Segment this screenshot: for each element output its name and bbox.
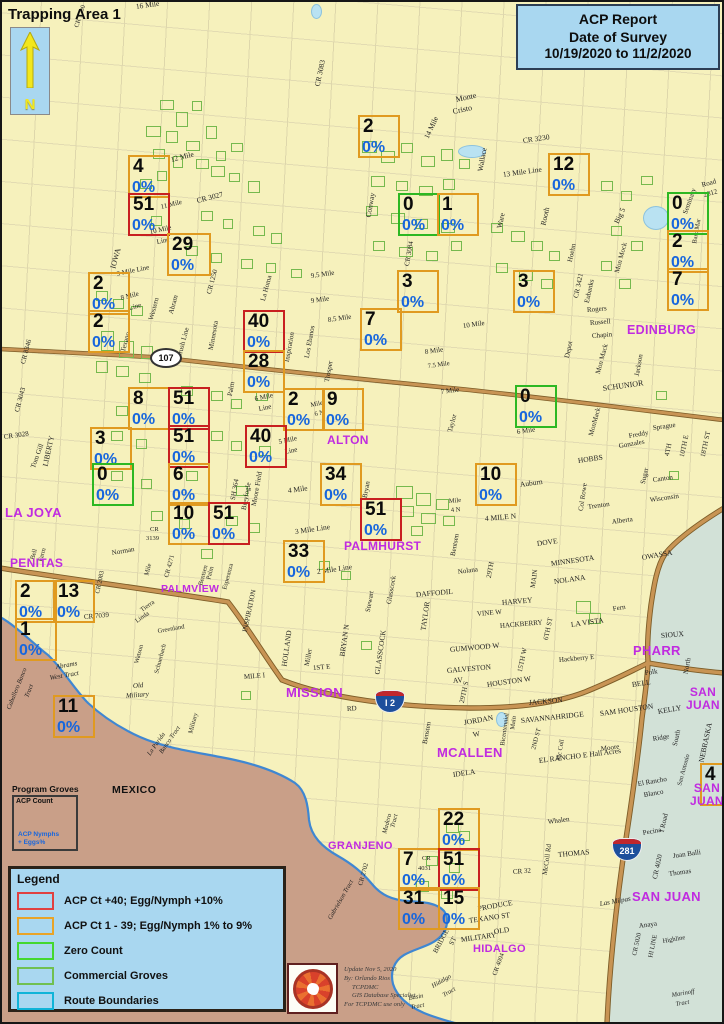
station-count: 2 <box>93 312 104 331</box>
station-percent: 0% <box>172 527 195 543</box>
station-count: 1 <box>20 620 31 639</box>
interstate-shield-label: I 2 <box>385 699 395 708</box>
station-percent: 0% <box>441 218 464 234</box>
station-percent: 0% <box>132 412 155 428</box>
station-count: 40 <box>248 312 269 331</box>
station-count: 0 <box>97 465 108 484</box>
station-percent: 0% <box>552 178 575 194</box>
legend-label: Commercial Groves <box>64 970 168 982</box>
station-box: 70% <box>398 848 440 891</box>
station-count: 51 <box>173 389 194 408</box>
station-percent: 0% <box>212 527 235 543</box>
station-box: 70% <box>667 268 709 311</box>
station-box: 10% <box>15 618 57 661</box>
station-percent: 0% <box>442 912 465 928</box>
station-box: 510% <box>208 502 250 545</box>
city-label: SAN JUAN <box>690 782 724 807</box>
station-percent: 0% <box>96 488 119 504</box>
station-percent: 0% <box>247 335 270 351</box>
credits-line: GIS Database Specialist <box>344 992 464 1001</box>
report-box: ACP Report Date of Survey 10/19/2020 to … <box>516 4 720 70</box>
legend-swatch <box>17 892 54 910</box>
station-count: 31 <box>403 889 424 908</box>
north-arrow-icon <box>18 32 42 88</box>
city-label: SAN JUAN <box>632 890 701 904</box>
station-percent: 0% <box>401 295 424 311</box>
station-box: 100% <box>475 463 517 506</box>
us-route-shield: 107 <box>150 348 182 368</box>
station-count: 10 <box>480 465 501 484</box>
legend-item: Route Boundaries <box>17 988 277 1013</box>
legend-swatch <box>17 992 54 1010</box>
station-box: 70% <box>360 308 402 351</box>
station-count: 3 <box>518 272 529 291</box>
station-percent: 0% <box>442 833 465 849</box>
legend-item: Commercial Groves <box>17 963 277 988</box>
credits-line: For TCPDMC use only <box>344 1001 464 1010</box>
shield-band <box>376 691 404 696</box>
city-label: MCALLEN <box>437 746 503 760</box>
mexico-label: MEXICO <box>112 784 156 796</box>
shield-band <box>613 839 641 844</box>
station-count: 10 <box>173 504 194 523</box>
station-box: 00% <box>398 193 440 236</box>
program-groves-title: Program Groves <box>12 784 79 794</box>
station-count: 4 <box>133 157 144 176</box>
station-box: 00% <box>92 463 134 506</box>
station-count: 2 <box>288 390 299 409</box>
station-count: 22 <box>443 810 464 829</box>
station-box: 20% <box>88 272 130 315</box>
city-label: PALMVIEW <box>161 584 219 595</box>
station-percent: 0% <box>57 605 80 621</box>
page-title: Trapping Area 1 <box>8 6 121 23</box>
city-label: MISSION <box>286 686 343 700</box>
station-box: 00% <box>515 385 557 428</box>
station-box: 510% <box>168 425 210 468</box>
station-box: 510% <box>360 498 402 541</box>
station-count: 7 <box>672 270 683 289</box>
station-count: 28 <box>248 352 269 371</box>
station-percent: 0% <box>517 295 540 311</box>
program-groves-key: Program Groves ACP Count ACP Nymphs + Eg… <box>12 784 79 851</box>
station-percent: 0% <box>479 488 502 504</box>
station-percent: 0% <box>249 450 272 466</box>
station-count: 40 <box>250 427 271 446</box>
station-count: 2 <box>20 582 31 601</box>
program-groves-box: ACP Count ACP Nymphs + Eggs% <box>12 795 78 851</box>
credits-line: Update Nov 5, 2020 <box>344 966 464 975</box>
update-credits: Update Nov 5, 2020By: Orlando RiosTCPDMC… <box>344 966 464 1010</box>
station-box: 40% <box>128 155 170 198</box>
interstate-shield: I 2 <box>375 690 405 713</box>
station-box: 30% <box>513 270 555 313</box>
city-label: SAN JUAN <box>686 686 720 711</box>
credits-line: By: Orlando Rios <box>344 975 464 984</box>
station-box: 20% <box>283 388 325 431</box>
station-count: 3 <box>402 272 413 291</box>
acp-count-label: ACP Count <box>16 798 53 805</box>
city-label: HIDALGO <box>473 944 526 956</box>
station-box: 150% <box>438 887 480 930</box>
station-percent: 0% <box>287 413 310 429</box>
city-label: PENITAS <box>10 557 63 570</box>
station-box: 20% <box>88 310 130 353</box>
report-dates: 10/19/2020 to 11/2/2020 <box>544 46 691 63</box>
credits-line: TCPDMC <box>344 984 464 993</box>
station-count: 12 <box>553 155 574 174</box>
interstate-shield-label: 281 <box>619 847 634 856</box>
station-count: 6 <box>173 465 184 484</box>
station-box: 20% <box>15 580 57 623</box>
station-box: 60% <box>168 463 210 506</box>
station-box: 20% <box>358 115 400 158</box>
station-box: 20% <box>667 230 709 273</box>
legend-label: ACP Ct 1 - 39; Egg/Nymph 1% to 9% <box>64 920 252 932</box>
station-percent: 0% <box>362 140 385 156</box>
station-box: 310% <box>398 887 440 930</box>
station-count: 34 <box>325 465 346 484</box>
station-percent: 0% <box>324 488 347 504</box>
station-percent: 0% <box>326 413 349 429</box>
acp-nymph-label: ACP Nymphs + Eggs% <box>18 831 59 847</box>
station-count: 51 <box>365 500 386 519</box>
station-count: 51 <box>213 504 234 523</box>
station-percent: 0% <box>364 523 387 539</box>
report-title: ACP Report <box>579 11 657 29</box>
legend-label: Zero Count <box>64 945 123 957</box>
interstate-shield: 281 <box>612 838 642 861</box>
station-box: 220% <box>438 808 480 851</box>
station-count: 51 <box>133 195 154 214</box>
station-count: 29 <box>172 235 193 254</box>
station-box: 510% <box>168 387 210 430</box>
station-percent: 0% <box>519 410 542 426</box>
station-count: 0 <box>672 194 683 213</box>
city-label: EDINBURG <box>627 324 696 337</box>
station-count: 2 <box>672 232 683 251</box>
legend-swatch <box>17 967 54 985</box>
city-label: PHARR <box>633 644 681 658</box>
station-percent: 0% <box>171 258 194 274</box>
north-arrow: N <box>10 27 50 115</box>
station-percent: 0% <box>132 218 155 234</box>
station-count: 11 <box>58 697 78 716</box>
station-box: 10% <box>437 193 479 236</box>
station-percent: 0% <box>402 912 425 928</box>
station-box: 90% <box>322 388 364 431</box>
station-count: 3 <box>95 429 106 448</box>
station-count: 51 <box>173 427 194 446</box>
station-box: 130% <box>53 580 95 623</box>
station-percent: 0% <box>364 333 387 349</box>
tcpdmc-seal-logo <box>287 963 338 1014</box>
station-box: 00% <box>667 192 709 235</box>
legend-title: Legend <box>17 872 277 886</box>
station-count: 0 <box>403 195 414 214</box>
legend-item: Zero Count <box>17 938 277 963</box>
station-percent: 0% <box>287 565 310 581</box>
station-box: 340% <box>320 463 362 506</box>
station-box: 100% <box>168 502 210 545</box>
station-count: 7 <box>365 310 376 329</box>
station-box: 290% <box>167 233 211 276</box>
station-box: 330% <box>283 540 325 583</box>
city-label: ALTON <box>327 434 369 447</box>
citrus-seal-icon <box>293 969 333 1009</box>
station-count: 7 <box>403 850 414 869</box>
station-box: 120% <box>548 153 590 196</box>
legend-item: ACP Ct 1 - 39; Egg/Nymph 1% to 9% <box>17 913 277 938</box>
station-percent: 0% <box>19 643 42 659</box>
station-box: 510% <box>128 193 170 236</box>
station-count: 2 <box>363 117 374 136</box>
station-box: 110% <box>53 695 95 738</box>
station-count: 2 <box>93 274 104 293</box>
station-count: 9 <box>327 390 338 409</box>
city-label: PALMHURST <box>344 540 421 553</box>
station-percent: 0% <box>402 218 425 234</box>
map-canvas: 16 MileCR 3200CR 308314 MileMonteCristoW… <box>0 0 724 1024</box>
legend: Legend ACP Ct +40; Egg/Nymph +10%ACP Ct … <box>8 866 286 1012</box>
city-label: LA JOYA <box>5 506 62 520</box>
station-box: 280% <box>243 350 285 393</box>
station-box: 30% <box>397 270 439 313</box>
station-percent: 0% <box>92 335 115 351</box>
station-box: 400% <box>243 310 285 353</box>
station-count: 1 <box>442 195 453 214</box>
station-percent: 0% <box>671 293 694 309</box>
legend-swatch <box>17 917 54 935</box>
legend-item: ACP Ct +40; Egg/Nymph +10% <box>17 888 277 913</box>
station-count: 0 <box>520 387 531 406</box>
legend-items: ACP Ct +40; Egg/Nymph +10%ACP Ct 1 - 39;… <box>17 888 277 1013</box>
station-count: 8 <box>133 389 144 408</box>
report-subtitle: Date of Survey <box>569 29 667 47</box>
station-box: 400% <box>245 425 287 468</box>
legend-label: ACP Ct +40; Egg/Nymph +10% <box>64 895 223 907</box>
station-count: 15 <box>443 889 464 908</box>
station-percent: 0% <box>247 375 270 391</box>
legend-label: Route Boundaries <box>64 995 159 1007</box>
station-count: 51 <box>443 850 464 869</box>
station-box: 80% <box>128 387 170 430</box>
station-percent: 0% <box>57 720 80 736</box>
city-label: GRANJENO <box>328 841 393 853</box>
north-label: N <box>25 97 36 112</box>
station-count: 13 <box>58 582 79 601</box>
legend-swatch <box>17 942 54 960</box>
station-box: 510% <box>438 848 480 891</box>
station-count: 33 <box>288 542 309 561</box>
